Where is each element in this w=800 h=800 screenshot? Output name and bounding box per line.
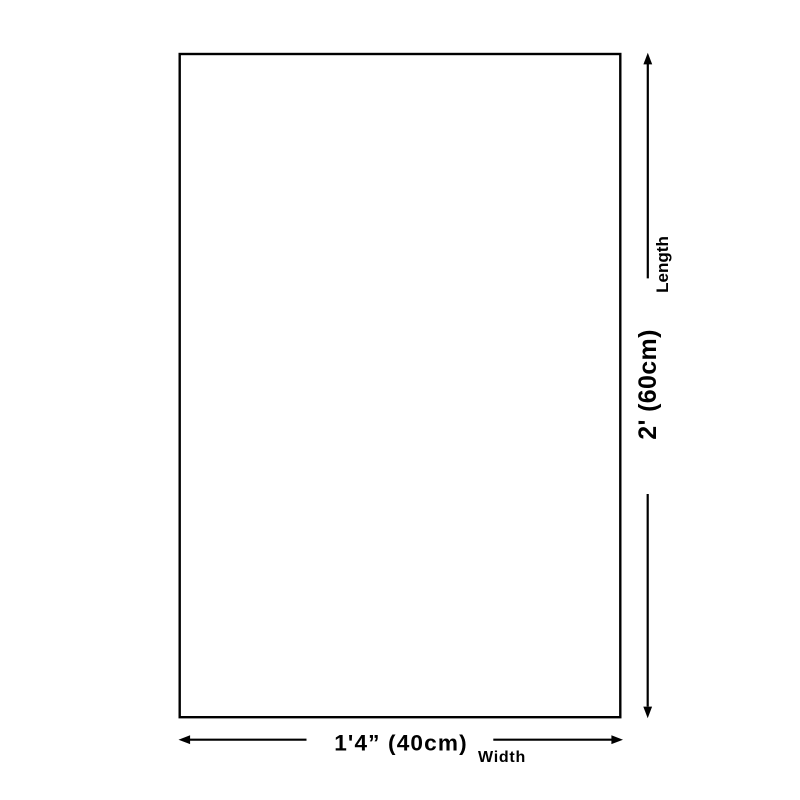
- svg-text:Length: Length: [653, 236, 672, 293]
- svg-text:2' (60cm): 2' (60cm): [634, 329, 662, 440]
- svg-text:Width: Width: [478, 749, 526, 766]
- svg-text:1'4” (40cm): 1'4” (40cm): [334, 730, 468, 755]
